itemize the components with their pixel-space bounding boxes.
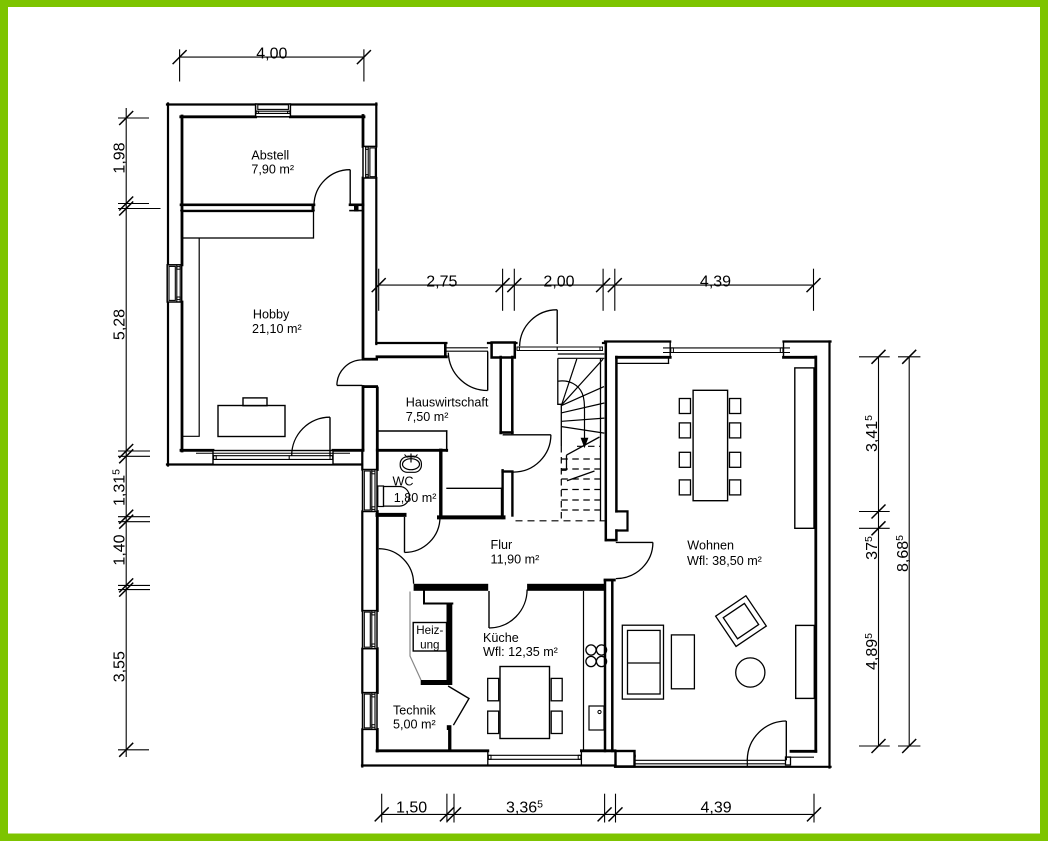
svg-text:Hauswirtschaft: Hauswirtschaft: [406, 396, 489, 410]
svg-text:1,50: 1,50: [396, 800, 427, 817]
svg-text:2,00: 2,00: [543, 274, 574, 291]
svg-text:Küche: Küche: [483, 631, 519, 645]
svg-text:1,80 m²: 1,80 m²: [394, 491, 437, 505]
svg-text:4,39: 4,39: [700, 274, 731, 291]
svg-text:Hobby: Hobby: [253, 307, 290, 321]
svg-text:Wfl: 12,35 m²: Wfl: 12,35 m²: [483, 645, 558, 659]
svg-text:Technik: Technik: [393, 704, 436, 718]
svg-text:Heiz-: Heiz-: [416, 624, 443, 637]
svg-text:2,75: 2,75: [426, 274, 457, 291]
svg-text:WC: WC: [393, 475, 414, 489]
svg-text:5,28: 5,28: [111, 309, 128, 340]
svg-text:7,50 m²: 7,50 m²: [406, 410, 449, 424]
svg-text:5,00 m²: 5,00 m²: [393, 717, 436, 731]
svg-text:3,55: 3,55: [111, 651, 128, 682]
svg-text:4,00: 4,00: [256, 46, 287, 63]
svg-text:1,40: 1,40: [111, 534, 128, 565]
svg-text:Wohnen: Wohnen: [687, 539, 734, 553]
svg-text:11,90 m²: 11,90 m²: [491, 553, 540, 567]
svg-text:Flur: Flur: [491, 538, 513, 552]
svg-text:Abstell: Abstell: [251, 149, 289, 163]
svg-text:1,98: 1,98: [111, 142, 128, 173]
svg-text:ung: ung: [420, 638, 439, 651]
svg-text:7,90 m²: 7,90 m²: [251, 163, 294, 177]
svg-text:Wfl: 38,50 m²: Wfl: 38,50 m²: [687, 554, 762, 568]
svg-text:4,39: 4,39: [701, 800, 732, 817]
svg-text:21,10 m²: 21,10 m²: [252, 322, 302, 336]
